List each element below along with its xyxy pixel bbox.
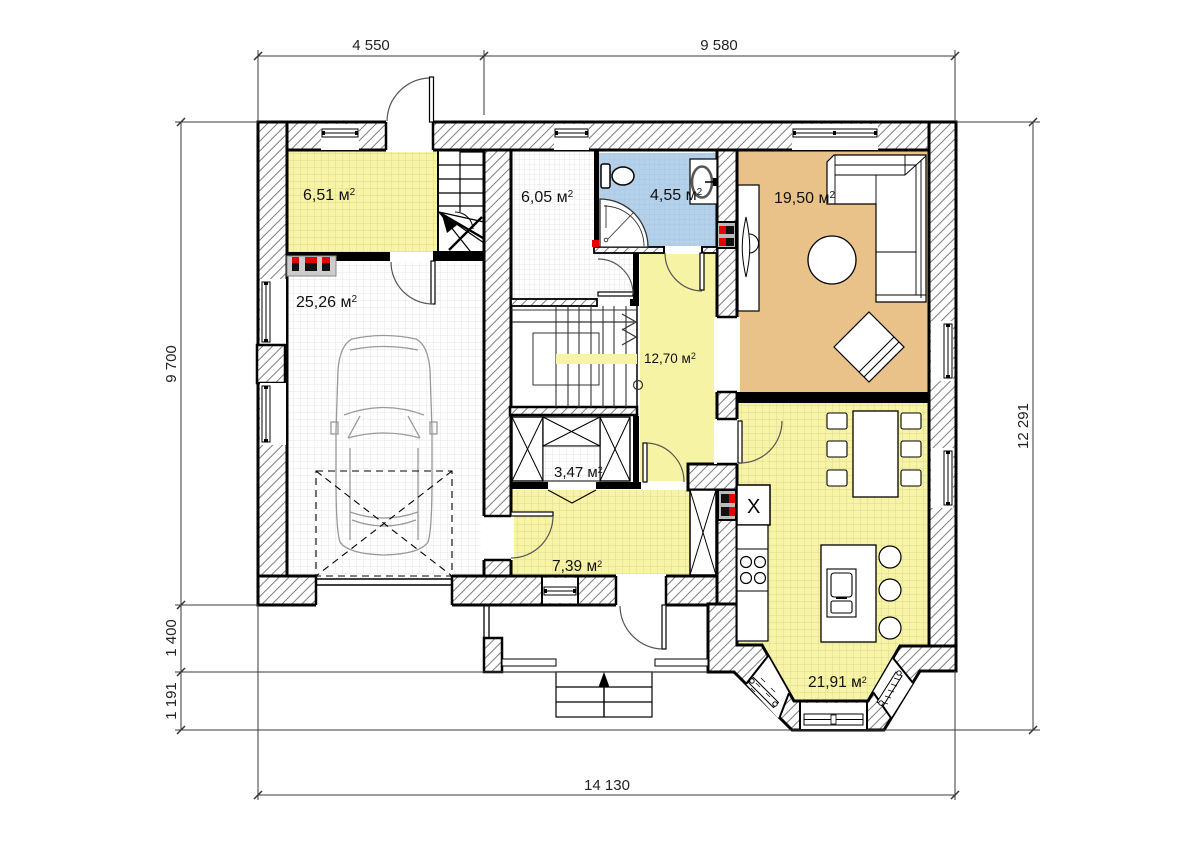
svg-text:12,70 м2: 12,70 м2 [644, 351, 696, 366]
svg-text:X: X [747, 496, 760, 518]
svg-text:9 700: 9 700 [163, 345, 180, 383]
svg-text:1 400: 1 400 [163, 619, 180, 657]
svg-text:19,50 м2: 19,50 м2 [774, 190, 835, 207]
svg-text:1 191: 1 191 [163, 682, 180, 720]
svg-text:14 130: 14 130 [584, 777, 630, 794]
svg-text:4,55 м2: 4,55 м2 [650, 187, 703, 204]
svg-text:25,26 м2: 25,26 м2 [296, 294, 357, 311]
svg-text:6,51 м2: 6,51 м2 [303, 187, 356, 204]
svg-text:4 550: 4 550 [352, 37, 390, 54]
svg-text:6,05 м2: 6,05 м2 [521, 189, 574, 206]
svg-text:3,47 м2: 3,47 м2 [554, 464, 603, 481]
svg-text:7,39 м2: 7,39 м2 [552, 558, 602, 575]
svg-text:12 291: 12 291 [1015, 403, 1032, 449]
svg-text:21,91 м2: 21,91 м2 [808, 674, 867, 691]
svg-text:9 580: 9 580 [700, 37, 738, 54]
